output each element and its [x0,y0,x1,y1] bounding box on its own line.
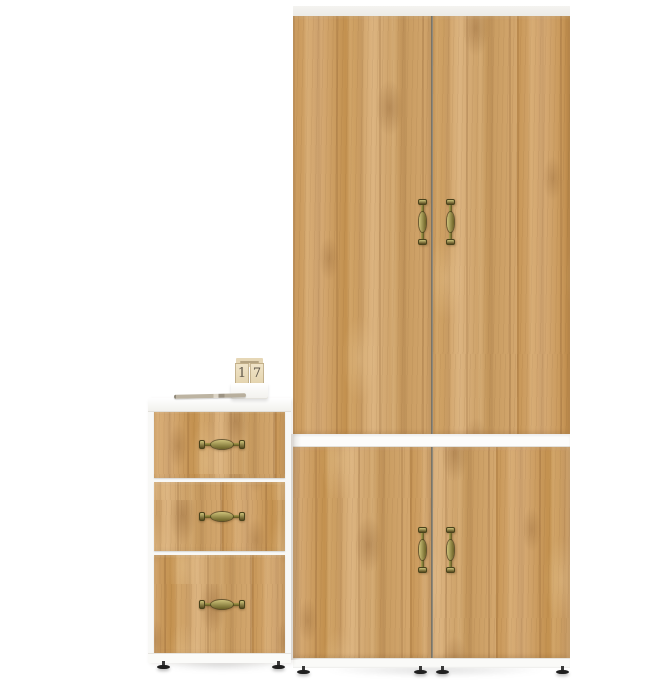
chest-drawer-middle [154,482,285,551]
wardrobe-lower-right-handle [445,527,456,573]
wardrobe-upper-section [293,16,570,434]
drawer-handle-top [199,439,245,450]
calendar-digit-card: 1 [235,363,249,384]
drawer-handle-middle [199,511,245,522]
calendar-digit: 7 [253,366,261,381]
chest-drawer-top [154,411,285,478]
wardrobe-divider-panel [293,434,570,447]
handle-grip [211,512,233,521]
wardrobe-foot [436,667,449,674]
wardrobe-plinth [293,658,570,668]
chest-drawer-bottom [154,555,285,653]
handle-grip [447,212,454,232]
drawer-chest [148,398,291,670]
wardrobe-lower-left-handle [417,527,428,573]
wardrobe-upper-door-left [293,16,431,434]
chest-foot [272,662,285,669]
chest-foot [157,662,170,669]
scene: 1 7 [0,0,664,700]
wardrobe-upper-left-handle [417,199,428,245]
wardrobe-lower-section [293,447,570,658]
wardrobe-lower-door-left [293,447,431,658]
handle-grip [419,212,426,232]
chest-cast-shadow [291,434,301,660]
handle-grip [211,600,233,609]
chest-top-panel [148,398,291,412]
handle-grip [447,540,454,560]
handle-grip [211,440,233,449]
wardrobe-upper-right-handle [445,199,456,245]
drawer-handle-bottom [199,599,245,610]
wardrobe-foot [556,667,569,674]
calendar-digit-card: 7 [250,363,264,384]
handle-grip [419,540,426,560]
wardrobe [293,6,570,673]
wardrobe-foot [297,667,310,674]
wardrobe-foot [414,667,427,674]
calendar-digit: 1 [238,366,246,381]
